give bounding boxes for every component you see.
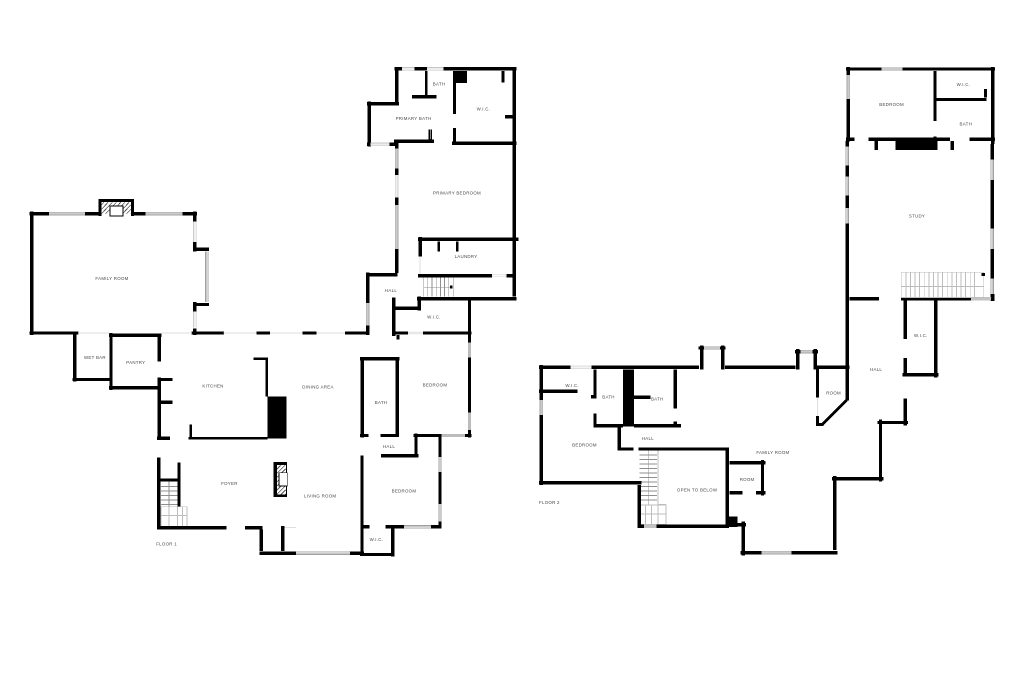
svg-text:FAMILY ROOM: FAMILY ROOM xyxy=(756,450,789,455)
svg-text:BATH: BATH xyxy=(375,400,388,405)
svg-text:LIVING ROOM: LIVING ROOM xyxy=(304,493,336,498)
svg-text:BATH: BATH xyxy=(433,82,446,87)
svg-text:DINING AREA: DINING AREA xyxy=(302,385,333,390)
svg-text:W.I.C.: W.I.C. xyxy=(427,315,441,320)
svg-text:WET BAR: WET BAR xyxy=(84,355,106,360)
svg-text:KITCHEN: KITCHEN xyxy=(202,384,223,389)
svg-text:STUDY: STUDY xyxy=(909,214,925,219)
svg-text:PANTRY: PANTRY xyxy=(126,360,145,365)
svg-text:ROOM: ROOM xyxy=(826,390,841,395)
svg-text:HALL: HALL xyxy=(385,288,397,293)
svg-text:PRIMARY BATH: PRIMARY BATH xyxy=(396,116,432,121)
svg-text:BEDROOM: BEDROOM xyxy=(423,383,448,388)
svg-text:W.I.C.: W.I.C. xyxy=(957,82,971,87)
svg-text:FOYER: FOYER xyxy=(221,481,238,486)
svg-text:FLOOR 1: FLOOR 1 xyxy=(156,542,177,547)
svg-text:BEDROOM: BEDROOM xyxy=(572,443,597,448)
svg-text:HALL: HALL xyxy=(383,444,395,449)
svg-text:W.I.C.: W.I.C. xyxy=(477,106,491,111)
svg-text:W.I.C.: W.I.C. xyxy=(914,333,928,338)
svg-text:BATH: BATH xyxy=(602,395,615,400)
svg-text:PRIMARY BEDROOM: PRIMARY BEDROOM xyxy=(433,191,481,196)
svg-text:W.I.C.: W.I.C. xyxy=(565,383,579,388)
svg-text:ROOM: ROOM xyxy=(740,477,755,482)
svg-text:HALL: HALL xyxy=(642,436,654,441)
svg-text:BEDROOM: BEDROOM xyxy=(392,489,417,494)
svg-text:HALL: HALL xyxy=(870,367,882,372)
svg-text:FLOOR 2: FLOOR 2 xyxy=(539,500,560,505)
svg-text:BATH: BATH xyxy=(960,121,973,126)
svg-text:OPEN TO BELOW: OPEN TO BELOW xyxy=(677,488,718,493)
svg-text:LAUNDRY: LAUNDRY xyxy=(455,254,478,259)
svg-text:FAMILY ROOM: FAMILY ROOM xyxy=(95,276,128,281)
svg-text:BEDROOM: BEDROOM xyxy=(879,102,904,107)
svg-text:W.I.C.: W.I.C. xyxy=(370,537,384,542)
svg-text:BATH: BATH xyxy=(651,397,664,402)
